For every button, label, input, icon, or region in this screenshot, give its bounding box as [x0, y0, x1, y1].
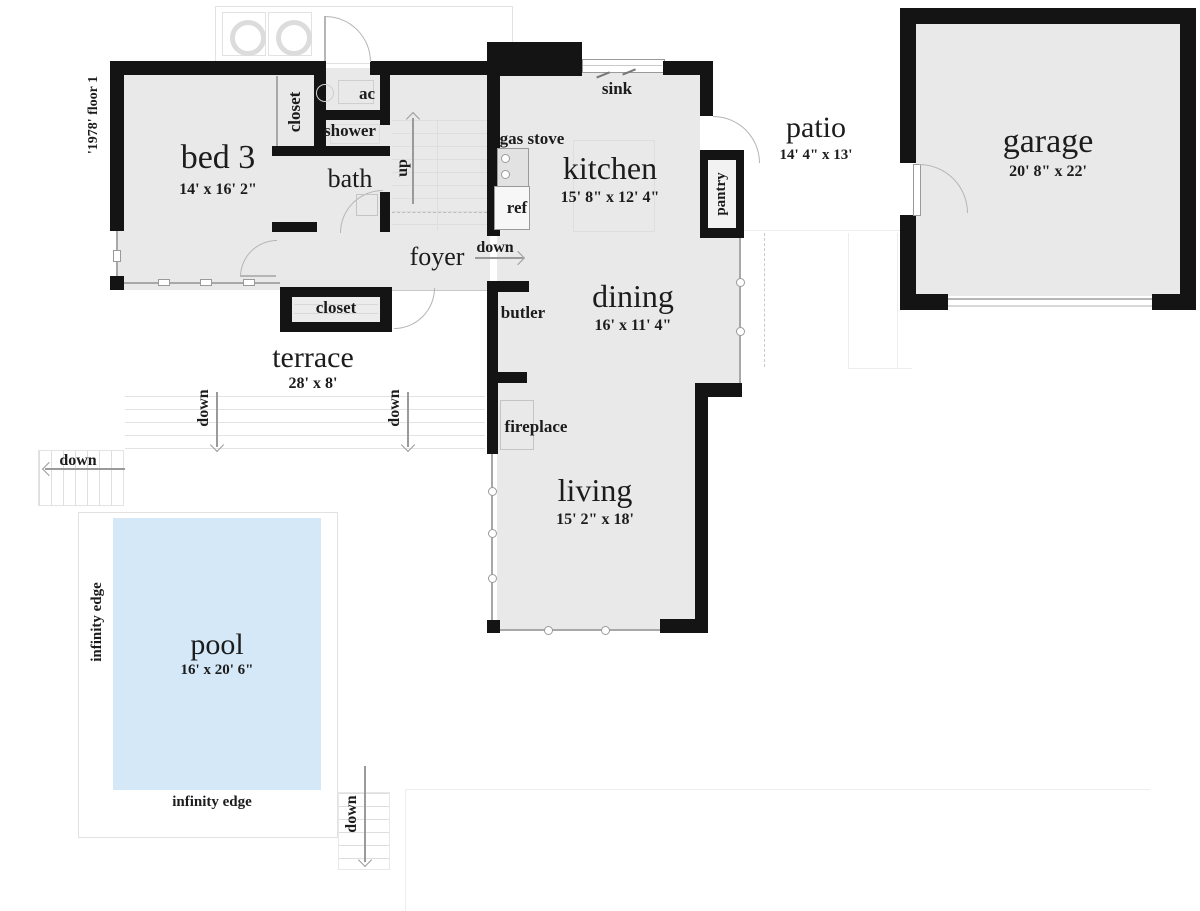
room-dims-patio: 14' 4" x 13' [756, 148, 876, 164]
label-down-left-stairs: down [54, 453, 102, 470]
window-kitchen-sink [582, 59, 665, 73]
label-down-bottom-stairs: down [344, 792, 360, 836]
wall-garage [900, 8, 916, 163]
room-label-dining: dining [553, 280, 713, 314]
wall-garage [1152, 294, 1196, 310]
label-gas-stove: gas stove [494, 130, 570, 148]
wall-garage [900, 294, 948, 310]
label-shower: shower [310, 122, 390, 140]
ac-fan-icon [276, 20, 312, 56]
wall [660, 619, 708, 633]
window-mark [200, 279, 212, 286]
arrow-up-stairs [412, 118, 414, 204]
terrace-steps [125, 396, 485, 453]
room-label-patio: patio [756, 112, 876, 144]
window-kitchen-sink-mid [583, 65, 662, 66]
roof-overhang-line [764, 233, 765, 367]
wall [110, 61, 124, 231]
label-closet-foyer: closet [298, 299, 374, 317]
window-mullion [488, 487, 497, 496]
lower-terrace-line [405, 789, 406, 911]
patio-step-line [848, 233, 849, 369]
door-leaf-bed3 [240, 275, 276, 277]
bath-fixture-icon [356, 194, 378, 216]
room-label-kitchen: kitchen [530, 152, 690, 186]
window-living-left [491, 454, 493, 622]
wall [695, 383, 708, 633]
label-sink: sink [587, 80, 647, 98]
window-mullion [736, 278, 745, 287]
window-mullion [544, 626, 553, 635]
room-label-living: living [515, 474, 675, 508]
room-dims-bed3: 14' x 16' 2" [138, 182, 298, 199]
label-pantry: pantry [714, 159, 730, 229]
patio-step-line [848, 368, 912, 369]
room-label-bed3: bed 3 [138, 140, 298, 176]
label-closet-top: closet [286, 77, 302, 147]
garage-door-line [948, 305, 1152, 307]
room-dims-dining: 16' x 11' 4" [553, 318, 713, 335]
window-mullion [601, 626, 610, 635]
label-down-foyer: down [468, 240, 522, 257]
window-mullion [736, 327, 745, 336]
room-label-terrace: terrace [243, 342, 383, 374]
room-label-pool: pool [147, 629, 287, 661]
room-label-garage: garage [968, 124, 1128, 160]
room-dims-living: 15' 2" x 18' [515, 512, 675, 529]
room-dims-pool: 16' x 20' 6" [147, 663, 287, 679]
label-infinity-edge-bottom: infinity edge [150, 795, 274, 811]
garage-door-line [948, 298, 1152, 300]
wall [487, 42, 582, 76]
wall-garage [1180, 8, 1196, 310]
wall [110, 61, 325, 75]
door-arc-patio [713, 116, 760, 163]
window-mark [113, 250, 121, 262]
room-dims-terrace: 28' x 8' [243, 376, 383, 393]
wall [272, 222, 317, 232]
wall [487, 372, 527, 383]
label-up: up [395, 151, 411, 185]
window-dining-right [739, 237, 741, 383]
label-bath: bath [302, 165, 398, 192]
patio-edge-line [744, 230, 912, 231]
label-down-terrace-2: down [387, 386, 403, 430]
wall [110, 276, 124, 290]
stair-cut-line [392, 212, 487, 213]
patio-step-line [897, 233, 898, 369]
window-mullion [488, 529, 497, 538]
wall [314, 110, 390, 120]
arrow-down-bottom-stairs [364, 766, 366, 862]
window-mark [243, 279, 255, 286]
wall [370, 61, 500, 75]
wall-garage [900, 8, 1196, 24]
door-leaf-entry [324, 16, 326, 61]
floor-garage [916, 24, 1180, 296]
label-butler: butler [494, 304, 552, 322]
wall [487, 620, 500, 633]
burner-icon [501, 170, 510, 179]
window-living-bottom [500, 629, 662, 631]
window-mark [158, 279, 170, 286]
window-mullion [488, 574, 497, 583]
lower-terrace-line [405, 789, 1150, 790]
label-ac: ac [342, 85, 392, 103]
closet-door-line [276, 76, 278, 146]
room-dims-garage: 20' 8" x 22' [968, 164, 1128, 181]
wall [700, 61, 713, 116]
burner-icon [501, 154, 510, 163]
floor-plan: '1978' floor 1 bed 3 14' x 16' 2" closet… [0, 0, 1200, 911]
stair-edge-line [437, 120, 438, 230]
label-down-terrace-1: down [196, 386, 212, 430]
water-heater-icon [316, 84, 334, 102]
door-arc-terrace [394, 288, 435, 329]
floor-tag: '1978' floor 1 [87, 60, 103, 170]
wall [314, 61, 326, 156]
label-infinity-edge-left: infinity edge [90, 567, 106, 677]
label-fireplace: fireplace [496, 418, 576, 436]
room-dims-kitchen: 15' 8" x 12' 4" [530, 190, 690, 207]
ac-fan-icon [230, 20, 266, 56]
